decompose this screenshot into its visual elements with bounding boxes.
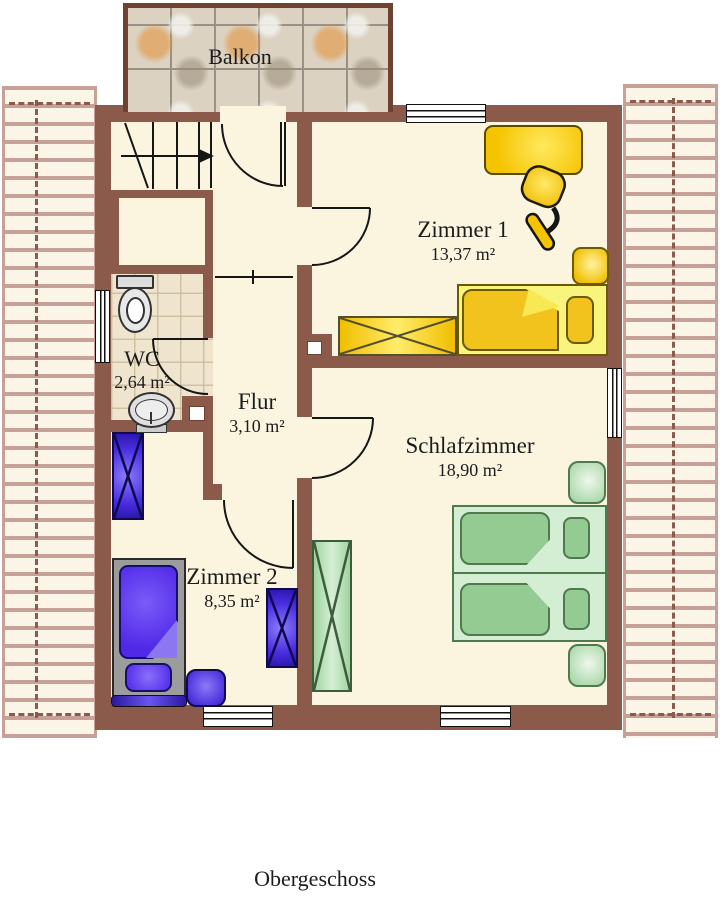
balcony-door-opening xyxy=(220,106,286,122)
desk xyxy=(484,125,583,175)
room-name: Flur xyxy=(157,388,357,416)
room-name: Zimmer 2 xyxy=(132,563,332,591)
floor-plan: Balkon Zimmer 1 13,37 m² WC 2,64 m² Flur… xyxy=(0,0,720,900)
wall-stairhall-zimmer1 xyxy=(297,122,312,207)
nightstand-yellow xyxy=(572,247,609,285)
window-schlafzimmer-south xyxy=(440,706,511,727)
roof-overhang-left xyxy=(2,86,97,738)
nightstand-green xyxy=(568,644,606,687)
pillow xyxy=(125,663,172,692)
floor-title: Obergeschoss xyxy=(165,866,465,892)
room-label-wc: WC 2,64 m² xyxy=(42,346,242,394)
pillow xyxy=(563,517,590,559)
window-schlafzimmer-east xyxy=(607,368,622,438)
room-label-flur: Flur 3,10 m² xyxy=(157,388,357,437)
wardrobe-blue-west xyxy=(112,432,144,520)
wall-door-jamb xyxy=(203,484,222,500)
pillow xyxy=(566,296,594,344)
room-area: 3,10 m² xyxy=(157,416,357,438)
bed-drawer-blue xyxy=(111,695,187,707)
wardrobe-yellow xyxy=(338,316,457,356)
room-label-balkon: Balkon xyxy=(140,44,340,70)
window-zimmer1 xyxy=(406,104,486,123)
duct-shaft xyxy=(307,341,322,355)
room-label-schlafzimmer: Schlafzimmer 18,90 m² xyxy=(370,432,570,481)
room-name: Schlafzimmer xyxy=(370,432,570,460)
room-name: WC xyxy=(42,346,242,372)
understair-closet xyxy=(111,190,213,273)
room-label-zimmer1: Zimmer 1 13,37 m² xyxy=(363,216,563,265)
roof-eave-dashed-line xyxy=(9,102,90,105)
wall-wc-east xyxy=(203,265,213,338)
wall-flur-west xyxy=(203,432,213,484)
roof-eave-dashed-line xyxy=(630,713,711,716)
roof-eave-dashed-line xyxy=(630,100,711,103)
roof-ridge-dashed-line xyxy=(35,100,38,718)
room-area: 8,35 m² xyxy=(132,591,332,613)
wall-west xyxy=(95,105,111,730)
room-name: Balkon xyxy=(140,44,340,70)
wall-zimmer1-schlafzimmer xyxy=(312,356,607,368)
roof-overhang-right xyxy=(623,84,718,738)
room-area: 18,90 m² xyxy=(370,460,570,482)
nightstand-green xyxy=(568,461,606,504)
stool-blue xyxy=(186,669,226,707)
roof-ridge-dashed-line xyxy=(672,98,675,718)
window-zimmer2 xyxy=(203,706,273,727)
wall-south xyxy=(95,705,622,730)
room-area: 13,37 m² xyxy=(363,244,563,266)
pillow xyxy=(563,588,590,630)
room-name: Zimmer 1 xyxy=(363,216,563,244)
toilet-bowl xyxy=(126,297,145,324)
roof-eave-dashed-line xyxy=(9,713,90,716)
room-label-zimmer2: Zimmer 2 8,35 m² xyxy=(132,563,332,612)
